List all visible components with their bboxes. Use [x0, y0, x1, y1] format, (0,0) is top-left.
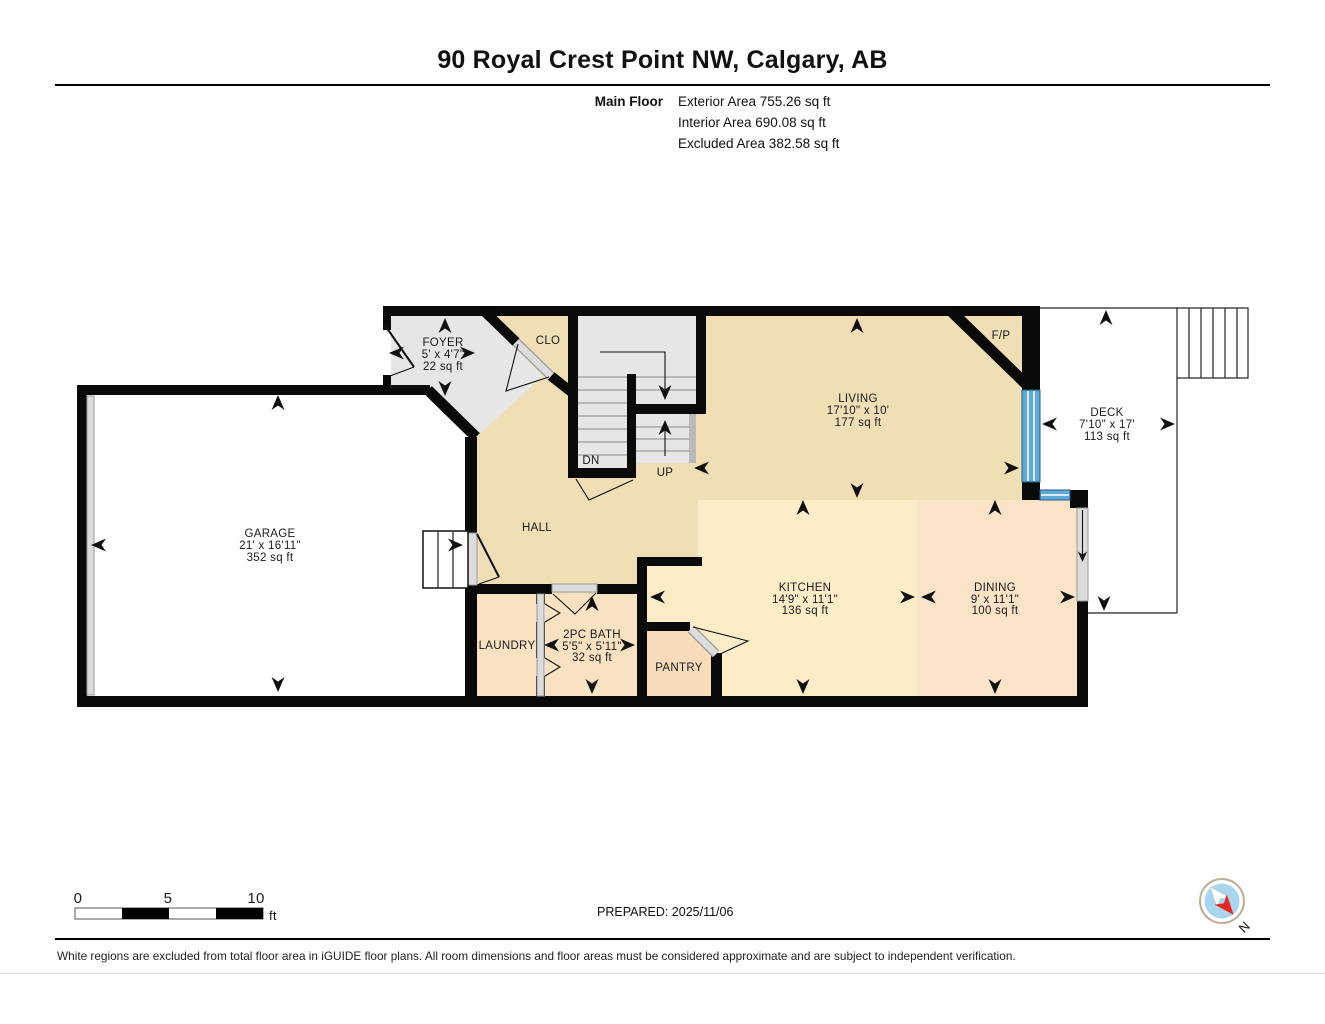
garage-area: 352 sq ft — [247, 552, 294, 564]
living-dims: 17'10" x 10' — [827, 405, 890, 417]
scale-tick-10: 10 — [247, 890, 264, 907]
wall-foyer-left-bottom — [383, 375, 391, 390]
living-window — [1022, 390, 1040, 482]
scale-unit: ft — [269, 908, 277, 923]
stair-down-label: DN — [582, 455, 599, 467]
compass-north-label: N — [1235, 918, 1252, 935]
foyer-dims: 5' x 4'7" — [422, 349, 465, 361]
compass: N — [1200, 879, 1253, 936]
wall-stair-bottom — [568, 468, 636, 478]
stair-railing — [689, 414, 696, 463]
deck-stair-treads — [1189, 308, 1237, 378]
deck-dims: 7'10" x 17' — [1079, 419, 1135, 431]
pantry-label: PANTRY — [655, 662, 702, 674]
room-fills — [391, 316, 1077, 696]
prepared-date: PREPARED: 2025/11/06 — [597, 905, 733, 919]
closet-label: CLO — [536, 335, 561, 347]
garage-steps — [423, 531, 468, 588]
wall-pantry-top — [641, 622, 690, 631]
dining-area: 100 sq ft — [972, 605, 1019, 617]
wall-stair-mid — [636, 404, 706, 414]
dining-label: DINING — [974, 582, 1016, 594]
wall-living-right-corner — [1022, 482, 1040, 500]
disclaimer-text: White regions are excluded from total fl… — [57, 949, 1016, 963]
living-area: 177 sq ft — [835, 417, 882, 429]
laundry-label: LAUNDRY — [479, 640, 536, 652]
wall-pantry-right — [711, 653, 722, 696]
foyer-label: FOYER — [422, 337, 463, 349]
wall-stair-left — [568, 316, 578, 478]
page-bottom-rule — [0, 973, 1325, 974]
compass-face — [1205, 884, 1240, 919]
garage-label: GARAGE — [244, 528, 295, 540]
hall-label: HALL — [522, 522, 552, 534]
scale-bar-segment — [122, 908, 169, 919]
kitchen-label: KITCHEN — [779, 582, 832, 594]
wall-bath-top-left — [470, 584, 552, 594]
stair-down-flight-fill — [578, 374, 627, 468]
footer-divider — [55, 938, 1270, 940]
scale-tick-0: 0 — [74, 890, 83, 907]
deck-area: 113 sq ft — [1084, 431, 1130, 443]
garage-dims: 21' x 16'11" — [239, 540, 301, 552]
scale-bar: 0 5 10 ft — [74, 890, 277, 923]
wall-stair-right — [696, 306, 706, 414]
scale-bar-segment — [216, 908, 263, 919]
laundry-opening — [537, 594, 544, 696]
wall-garage-left — [77, 385, 87, 707]
garage-steps-box — [423, 531, 468, 588]
wall-stair-divider — [627, 374, 636, 478]
foyer-area: 22 sq ft — [423, 361, 464, 373]
hall-corridor-fill — [477, 500, 645, 594]
wall-house-left-lower — [465, 585, 477, 696]
scale-tick-5: 5 — [164, 890, 173, 907]
wall-house-left-upper — [465, 437, 477, 533]
floor-plan-page: 90 Royal Crest Point NW, Calgary, AB Mai… — [0, 0, 1325, 1024]
stair-landing-fill — [578, 316, 696, 374]
wall-dining-right — [1077, 601, 1088, 696]
floor-plan-drawing: GARAGE 21' x 16'11" 352 sq ft FOYER 5' x… — [0, 0, 1325, 1024]
wall-garage-top — [77, 385, 430, 395]
hall-strip-fill — [645, 500, 698, 557]
living-label: LIVING — [838, 393, 878, 405]
wall-bottom — [77, 696, 1088, 707]
bath-area: 32 sq ft — [572, 652, 613, 664]
fireplace-label: F/P — [992, 330, 1011, 342]
bath-door-opening — [552, 584, 597, 592]
wall-hall-kitchen — [637, 557, 702, 566]
deck-label: DECK — [1090, 407, 1123, 419]
wall-dining-corner — [1070, 490, 1088, 508]
stair-up-label: UP — [657, 467, 674, 479]
kitchen-area: 136 sq ft — [782, 605, 829, 617]
bath-label: 2PC BATH — [563, 629, 621, 641]
